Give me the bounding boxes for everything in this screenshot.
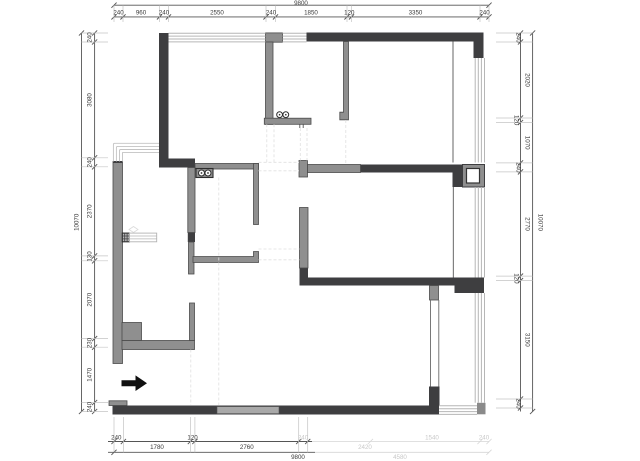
svg-text:3080: 3080: [87, 93, 94, 107]
svg-text:1780: 1780: [150, 444, 164, 451]
svg-text:120: 120: [513, 115, 520, 126]
svg-text:240: 240: [159, 10, 170, 17]
svg-text:9800: 9800: [291, 454, 305, 461]
svg-text:9800: 9800: [294, 0, 308, 7]
svg-text:2420: 2420: [358, 444, 372, 451]
svg-text:1070: 1070: [524, 136, 531, 150]
svg-text:2370: 2370: [87, 204, 94, 218]
svg-text:240: 240: [113, 10, 124, 17]
svg-text:4580: 4580: [393, 454, 407, 461]
svg-text:2760: 2760: [240, 444, 254, 451]
svg-text:2070: 2070: [87, 292, 94, 306]
svg-text:960: 960: [136, 10, 147, 17]
svg-text:120: 120: [187, 434, 198, 441]
svg-text:240: 240: [515, 398, 522, 409]
svg-text:240: 240: [87, 401, 94, 412]
svg-text:130: 130: [87, 251, 94, 262]
svg-text:240: 240: [87, 157, 94, 168]
svg-text:240: 240: [515, 32, 522, 43]
svg-text:2020: 2020: [524, 73, 531, 87]
svg-text:1540: 1540: [425, 434, 439, 441]
svg-text:2770: 2770: [524, 217, 531, 231]
svg-text:3150: 3150: [524, 333, 531, 347]
svg-text:240: 240: [87, 32, 94, 43]
svg-text:10070: 10070: [74, 213, 81, 231]
svg-text:10070: 10070: [537, 214, 544, 232]
svg-text:240: 240: [266, 10, 277, 17]
svg-text:1470: 1470: [87, 367, 94, 381]
svg-text:240: 240: [479, 10, 490, 17]
svg-text:3350: 3350: [409, 10, 423, 17]
svg-text:120: 120: [344, 10, 355, 17]
svg-text:1850: 1850: [304, 10, 318, 17]
svg-text:240: 240: [111, 434, 122, 441]
svg-text:240: 240: [479, 434, 490, 441]
svg-text:240: 240: [298, 434, 309, 441]
svg-text:240: 240: [515, 162, 522, 173]
svg-text:120: 120: [513, 273, 520, 284]
svg-text:230: 230: [87, 337, 94, 348]
svg-text:2550: 2550: [210, 10, 224, 17]
